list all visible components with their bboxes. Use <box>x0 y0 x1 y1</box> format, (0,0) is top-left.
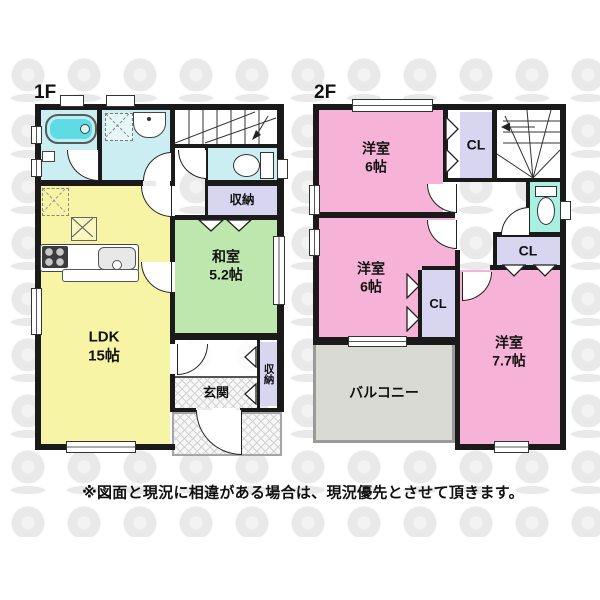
window <box>309 229 320 256</box>
disclaimer-text: ※図面と現況に相違がある場合は、現況優先とさせて頂きます。 <box>82 482 524 503</box>
toilet-1f-icon <box>233 152 275 178</box>
toilet-window <box>277 159 288 179</box>
wall <box>175 333 277 340</box>
window <box>31 288 42 335</box>
closet-c-door-icon <box>533 264 557 277</box>
wall <box>313 104 566 110</box>
wall <box>170 408 196 412</box>
bedroom-6b-label: 洋室6帖 <box>357 261 385 296</box>
toilet-window <box>560 201 571 220</box>
oshiire-door-icon <box>198 219 224 232</box>
wall <box>313 104 319 345</box>
closet-a-door-icon <box>445 116 459 142</box>
vent-window <box>106 95 135 107</box>
bedroom-77-label: 洋室7.7帖 <box>492 335 525 370</box>
hall-storage-label: 収納 <box>261 364 274 385</box>
wall <box>455 250 460 444</box>
oshiire-door-icon <box>226 219 252 232</box>
bathtub-icon <box>45 114 97 144</box>
shower-tap-icon <box>42 151 55 162</box>
hall-storage-door-icon <box>244 383 257 405</box>
closet-b-door-icon <box>406 273 420 299</box>
stairs-2f <box>497 110 560 178</box>
entrance-label: 玄関 <box>203 385 229 401</box>
window <box>66 441 136 453</box>
wall <box>448 178 560 182</box>
stove-icon <box>42 246 68 268</box>
washing-machine-icon <box>105 113 133 141</box>
ldk-label: LDK15帖 <box>88 328 120 366</box>
closet-b-label: CL <box>429 296 446 312</box>
wall <box>170 216 175 262</box>
wall <box>35 104 41 450</box>
window <box>309 185 320 215</box>
floor-2-label: 2F <box>314 82 336 104</box>
bedroom-6a-label: 洋室6帖 <box>362 141 390 176</box>
hall-storage-door-icon <box>244 346 257 368</box>
closet-c-label: CL <box>519 242 538 260</box>
floor-plan: 1F <box>0 0 600 600</box>
wall <box>422 266 455 270</box>
window <box>352 99 433 112</box>
stairs-1f-treads <box>175 110 277 144</box>
window <box>273 236 285 305</box>
wall <box>175 144 277 148</box>
wall <box>319 212 455 218</box>
wall <box>170 374 175 412</box>
floor-hatch-icon <box>71 217 97 241</box>
closet-a-label: CL <box>467 136 486 154</box>
wall <box>41 180 143 186</box>
vent-window <box>60 95 84 107</box>
wall <box>560 104 566 450</box>
toilet-2f-tank-icon <box>535 186 557 197</box>
wall <box>205 180 277 186</box>
closet-c-door-icon <box>502 264 526 277</box>
counter-ledge <box>62 269 139 282</box>
window <box>31 159 42 177</box>
balcony-label: バルコニー <box>349 384 419 402</box>
closet-b-door-icon <box>406 306 420 332</box>
balcony-sash-window <box>348 336 407 347</box>
wall <box>240 408 284 412</box>
floor-1-label: 1F <box>34 82 56 104</box>
entrance-step-line <box>175 376 257 378</box>
toilet-2f-icon <box>537 197 555 225</box>
faucet-icon <box>147 117 151 121</box>
wall <box>492 110 497 178</box>
window <box>494 441 529 453</box>
refrigerator-space-icon <box>42 188 69 216</box>
kitchen-sink-icon <box>98 247 136 270</box>
window <box>31 126 42 144</box>
wall <box>257 340 260 408</box>
stairs-1f <box>175 110 277 144</box>
closet-a-door-icon <box>445 148 459 174</box>
washitsu-label: 和室5.2帖 <box>209 249 242 284</box>
bathtub-drain-icon <box>80 124 90 134</box>
room-ldk <box>41 186 170 444</box>
sink-icon <box>133 112 166 138</box>
storage-label: 収納 <box>229 193 254 209</box>
stairs-2f-treads <box>497 110 560 178</box>
